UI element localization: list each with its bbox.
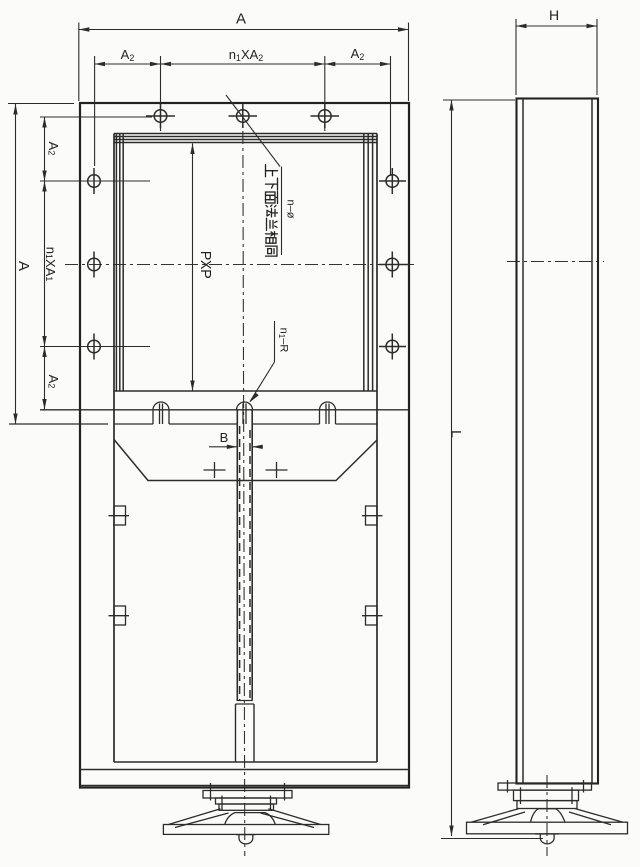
svg-text:n1XA1: n1XA1 <box>44 247 59 282</box>
svg-text:n1–R: n1–R <box>278 328 290 353</box>
svg-text:L: L <box>449 430 465 438</box>
svg-text:A: A <box>15 261 32 271</box>
svg-text:B: B <box>220 430 229 445</box>
svg-text:H: H <box>549 7 559 23</box>
svg-text:A: A <box>236 11 246 28</box>
svg-text:n–ø: n–ø <box>285 200 297 219</box>
svg-text:PXP: PXP <box>197 251 213 279</box>
svg-text:n1XA2: n1XA2 <box>229 47 264 63</box>
